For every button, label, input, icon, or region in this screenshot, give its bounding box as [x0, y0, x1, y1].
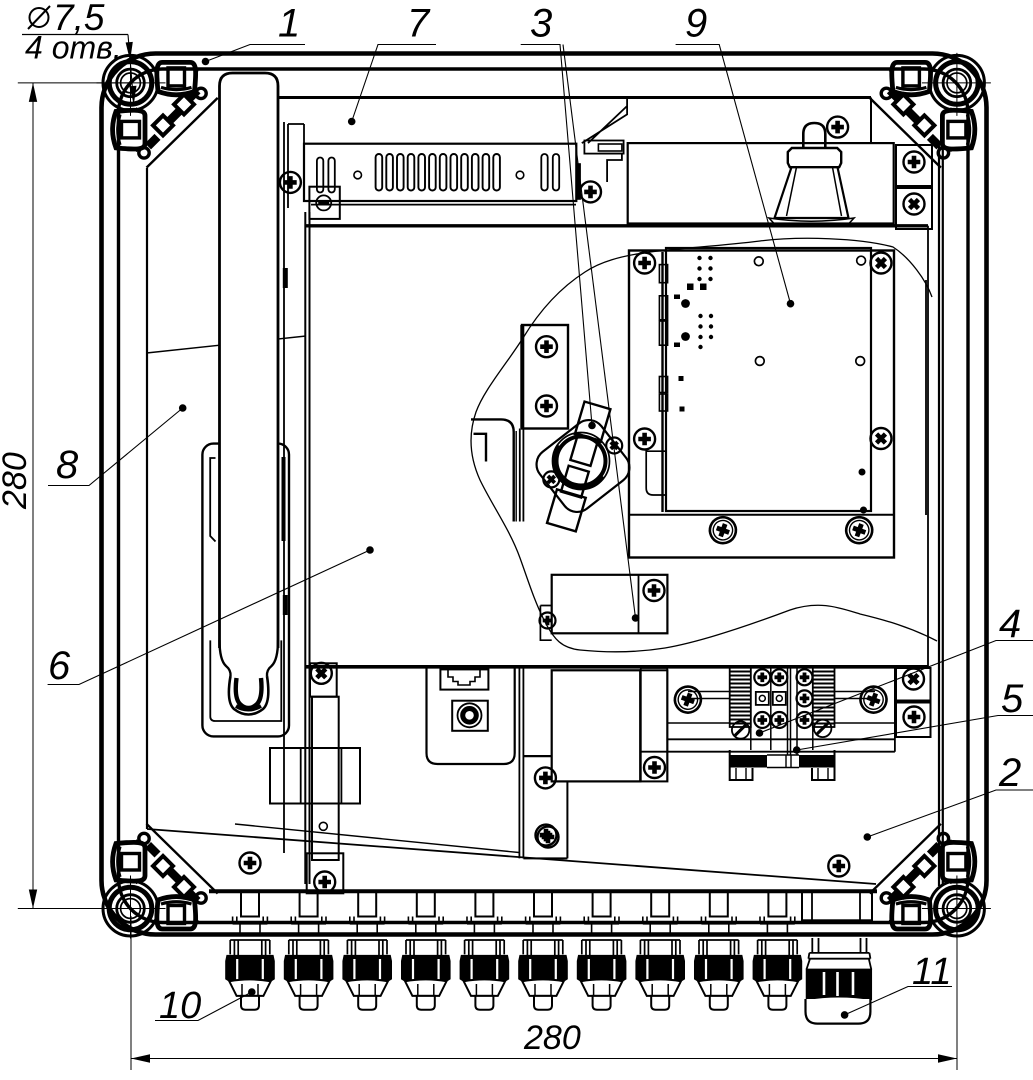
- svg-text:6: 6: [48, 644, 71, 688]
- svg-text:7: 7: [407, 2, 431, 46]
- svg-text:8: 8: [56, 443, 79, 487]
- svg-text:9: 9: [685, 2, 707, 46]
- svg-text:280: 280: [523, 1019, 581, 1057]
- svg-text:5: 5: [1001, 677, 1024, 721]
- svg-text:4: 4: [999, 602, 1021, 646]
- svg-text:2: 2: [998, 751, 1021, 795]
- svg-text:280: 280: [0, 452, 34, 510]
- svg-text:1: 1: [278, 2, 300, 46]
- svg-text:3: 3: [530, 2, 552, 46]
